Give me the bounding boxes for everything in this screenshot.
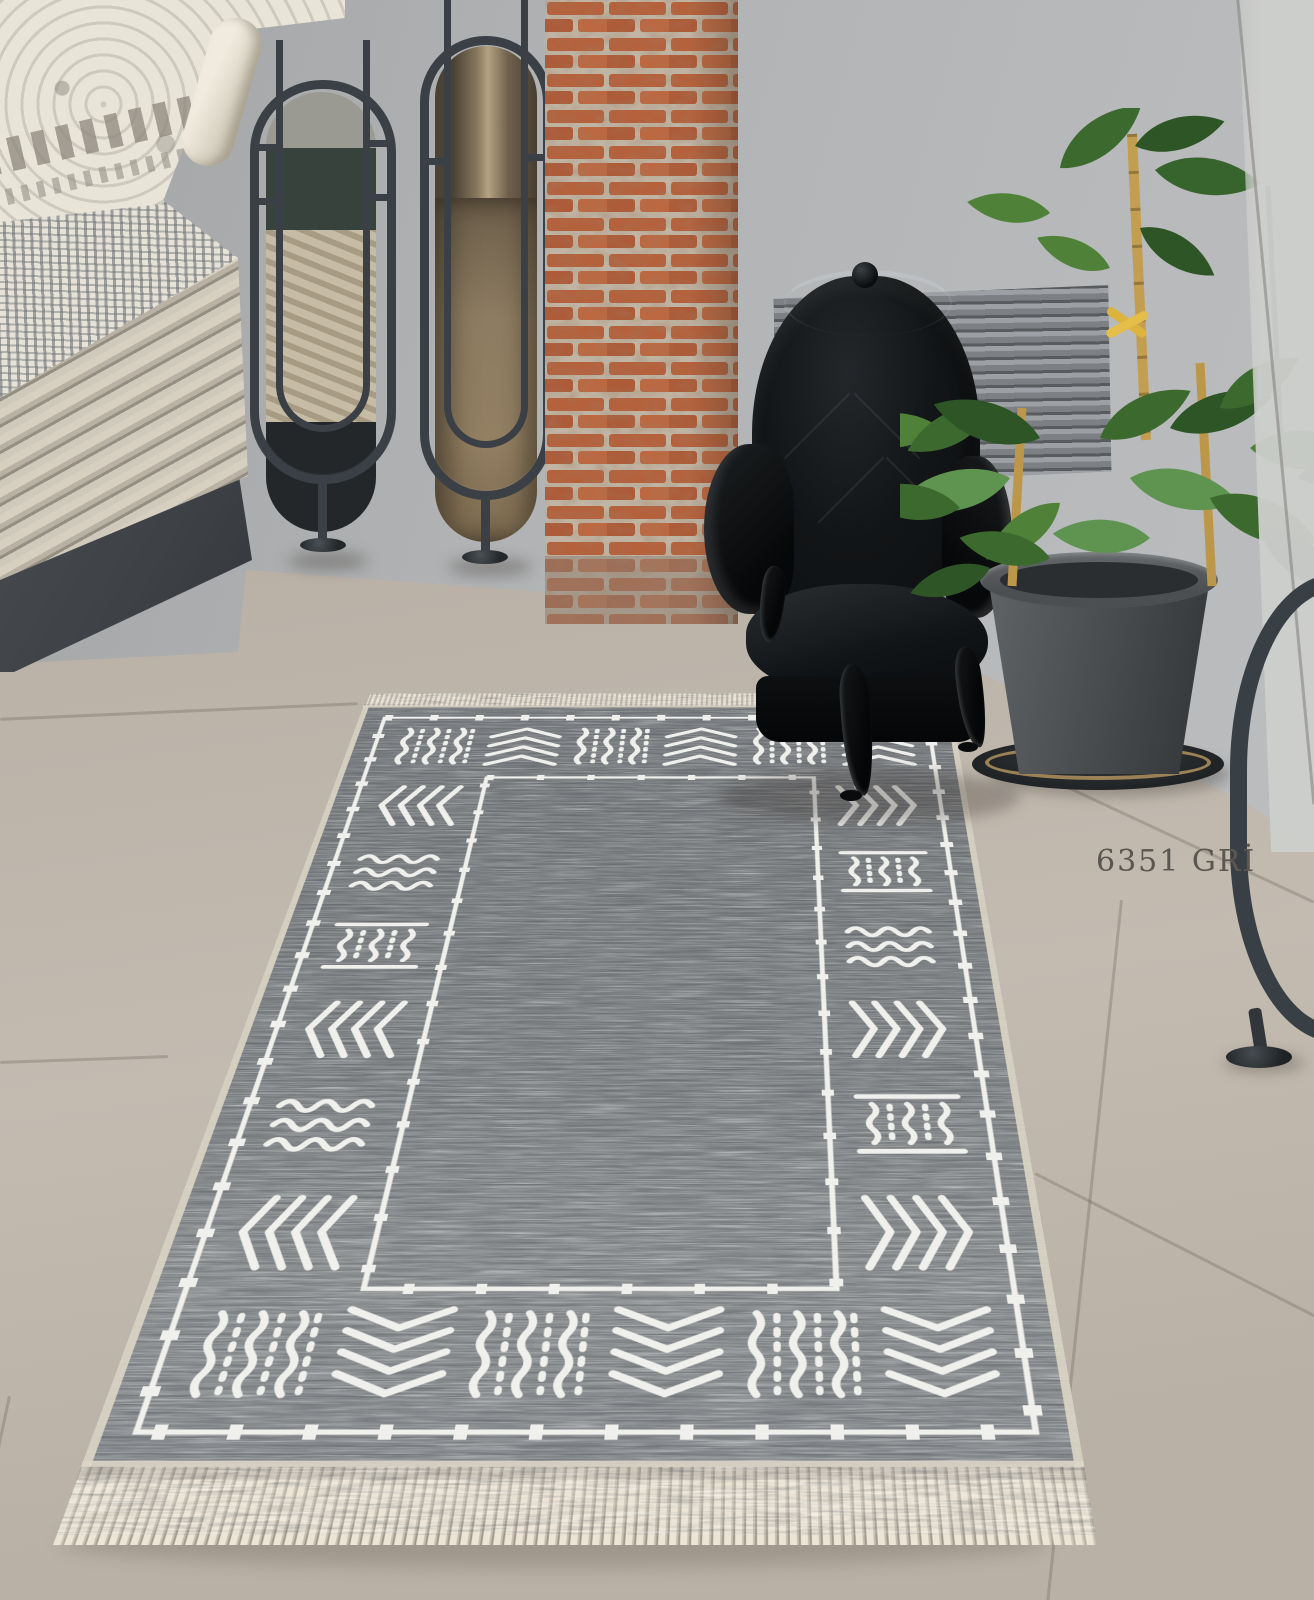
stand-leg bbox=[481, 498, 490, 556]
frame-crossbar bbox=[367, 194, 387, 201]
metal-frame-fragment bbox=[1228, 572, 1314, 1050]
colorway-label: 6351 GRİ bbox=[1096, 844, 1314, 884]
mirror-stand-right bbox=[420, 36, 552, 596]
frame-crossbar bbox=[428, 158, 446, 165]
showroom-photo: 6351 GRİ bbox=[0, 0, 1314, 1600]
fringe-root-shadow bbox=[76, 1467, 1086, 1480]
chair-foot bbox=[958, 742, 978, 752]
frame-crossbar bbox=[367, 140, 387, 147]
stand-leg bbox=[318, 482, 327, 542]
stand-foot bbox=[300, 538, 346, 552]
stand-foot bbox=[462, 550, 508, 564]
stand-inner-frame bbox=[276, 40, 370, 432]
mirror-stand-left bbox=[250, 80, 396, 566]
chair-crest-knob bbox=[852, 262, 878, 288]
stand-inner-frame bbox=[444, 0, 528, 448]
frame-crossbar bbox=[526, 154, 544, 161]
frame-crossbar bbox=[259, 144, 279, 151]
metal-frame-foot bbox=[1226, 1046, 1292, 1068]
metal-frame-arc bbox=[1230, 574, 1314, 1042]
chair-foot bbox=[840, 790, 862, 801]
frame-crossbar bbox=[259, 198, 279, 205]
